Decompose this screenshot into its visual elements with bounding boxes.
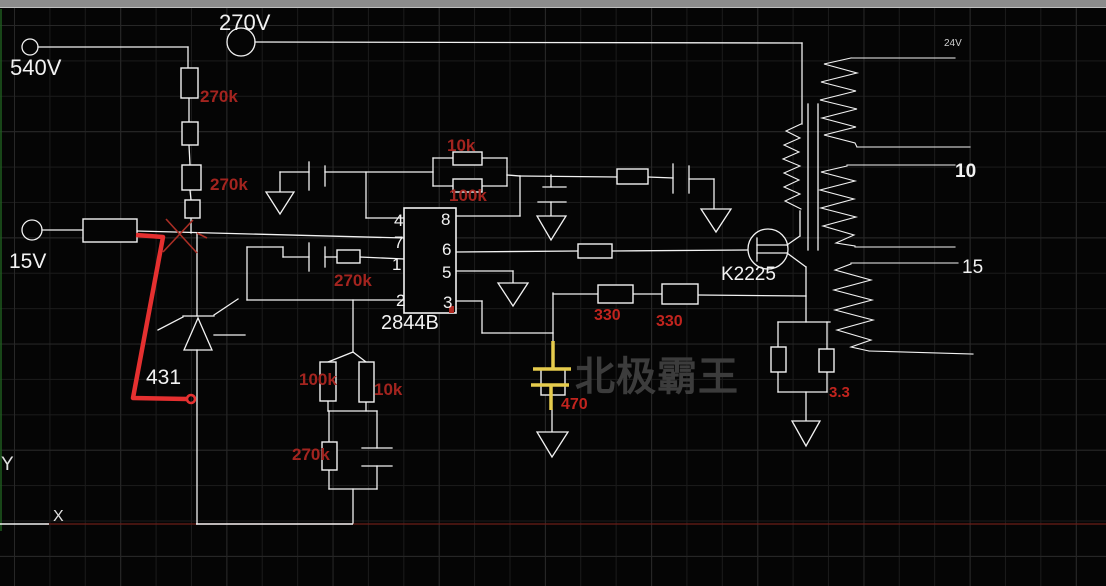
resistor-gate [578,244,612,258]
label-r-fb-270k: 270k [334,272,372,289]
resistor-fb-270k [337,250,360,263]
ic-pin-2: 2 [396,292,405,309]
resistor-270k-mid [182,165,201,190]
annotation-x-mark [163,219,207,253]
terminal-15v [22,220,42,240]
label-tap-24v: 24V [944,39,962,49]
label-r-330-b: 330 [656,314,683,330]
ic-pin-6: 6 [442,241,451,258]
resistor-10k [359,362,374,402]
label-2844b: 2844B [381,313,439,333]
resistor-3r3-a [771,347,786,372]
secondary-winding-15 [834,264,873,351]
label-tap-10: 10 [955,162,976,181]
resistor-snubber [617,169,648,184]
primary-winding [783,124,801,209]
ic-pin-3: 3 [443,294,452,311]
ic-pin-8: 8 [441,211,450,228]
resistor-chain-4 [185,200,200,218]
label-270v: 270V [219,12,270,34]
label-15v: 15V [9,251,46,272]
resistor-270k-top [181,68,198,98]
label-rt-100k: 100k [449,187,487,204]
schematic-drawing [0,0,1106,586]
label-r-270k-mid: 270k [210,176,248,193]
label-r-10k: 10k [374,381,402,398]
label-r-270k-bottom: 270k [292,446,330,463]
label-r-100k: 100k [299,371,337,388]
resistor-15v-input [83,219,137,242]
ucs-y-label: Y [1,455,14,474]
ic-pin-7: 7 [394,234,403,251]
ucs-x-label: X [53,509,64,525]
ic-pin-1: 1 [392,256,401,273]
ic-pin-5: 5 [442,264,451,281]
label-tap-15: 15 [962,258,983,277]
terminal-540v [22,39,38,55]
cad-canvas[interactable]: 540V 270V 15V 431 2844B K2225 24V 10 15 … [0,0,1106,586]
mosfet-body [748,229,788,269]
label-431: 431 [146,367,181,388]
resistor-3r3-b [819,349,834,372]
resistor-at-470 [541,369,565,395]
resistor-chain-2 [182,122,198,145]
wires [22,28,973,524]
label-r-270k-top: 270k [200,88,238,105]
secondary-winding-10 [820,166,856,246]
label-k2225: K2225 [721,265,776,284]
label-rt-10k: 10k [447,137,475,154]
resistor-330-a [598,285,633,303]
label-r-3r3: 3.3 [829,385,850,400]
resistor-330-b [662,284,698,304]
secondary-winding-24v [820,58,857,147]
ic-pin-4: 4 [394,212,403,229]
label-540v: 540V [10,57,61,79]
label-r-330-a: 330 [594,308,621,324]
watermark-text: 北极霸王 [575,344,739,402]
